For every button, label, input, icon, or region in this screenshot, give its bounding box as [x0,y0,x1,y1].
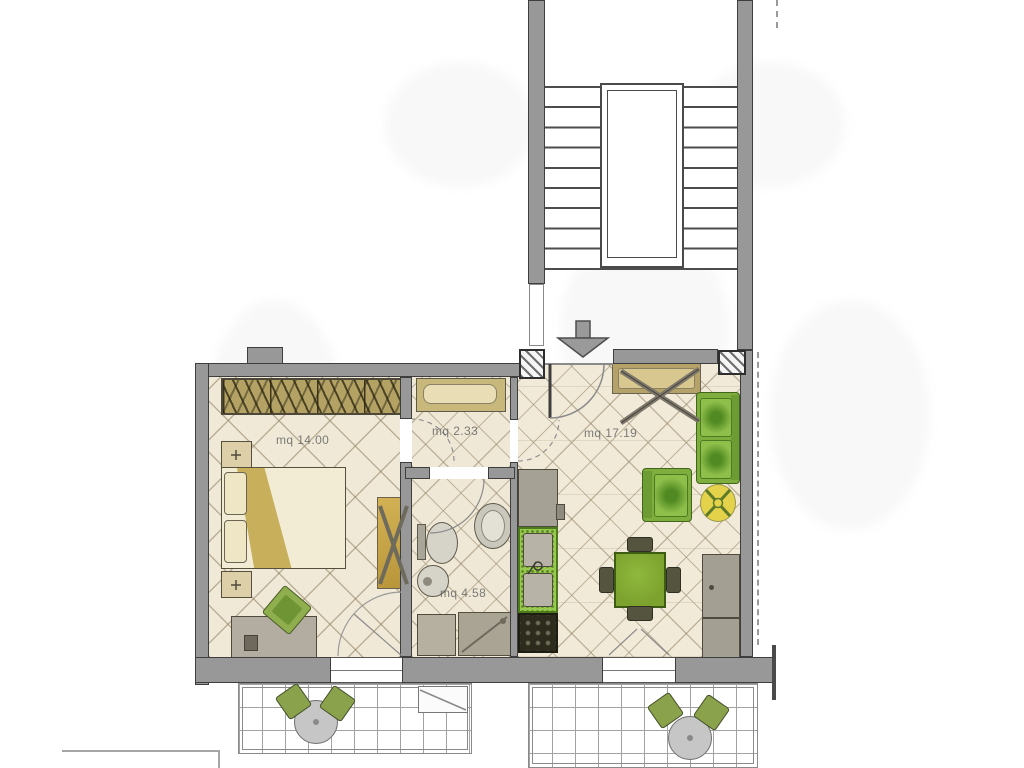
bedroom-window-leaf [354,614,402,656]
room-area-label-bathroom: mq 4.58 [440,586,486,600]
balcony-table-center [313,719,319,725]
bedroom-window-arc [338,592,402,656]
balcony-table-center [687,735,693,741]
hallway-door-arc [518,420,559,461]
nightstand-mark [231,580,241,590]
room-area-label-living: mq 17.19 [584,426,637,440]
entrance-door-arc [550,364,604,418]
entry-arrow-head [558,338,608,357]
living-window-leaf [609,629,637,655]
side-table-center [714,499,723,508]
room-area-label-hallway: mq 2.33 [432,424,478,438]
shower-diagonal [462,617,507,652]
annotations-overlay [0,0,1024,768]
box-diagonal [420,690,466,710]
living-window-leaf [641,629,669,655]
floor-plan-canvas: mq 14.00 mq 2.33 mq 17.19 mq 4.58 [0,0,1024,768]
entry-arrow-shaft [576,321,590,338]
bathroom-door-arc [430,479,484,533]
nightstand-mark [231,450,241,460]
room-area-label-bedroom: mq 14.00 [276,433,329,447]
